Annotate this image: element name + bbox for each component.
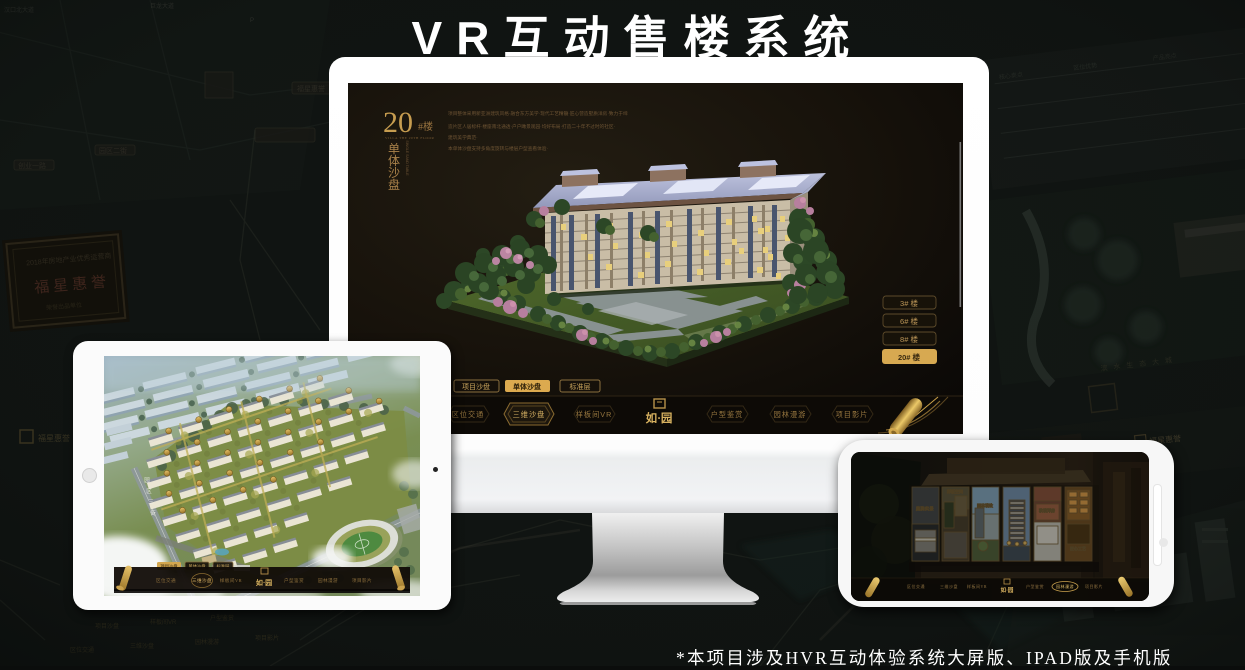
svg-text:户型鉴赏: 户型鉴赏 — [711, 410, 744, 419]
svg-text:项目影片: 项目影片 — [352, 577, 372, 584]
svg-text:三: 三 — [148, 499, 154, 506]
svg-text:园林漫游: 园林漫游 — [774, 410, 807, 419]
svg-text:区位交通: 区位交通 — [907, 583, 925, 589]
svg-text:三维沙盘: 三维沙盘 — [940, 583, 958, 589]
svg-text:园: 园 — [144, 477, 150, 484]
svg-text:户型鉴赏: 户型鉴赏 — [1026, 583, 1044, 589]
svg-text:20# 楼: 20# 楼 — [898, 352, 921, 362]
svg-text:三维沙盘: 三维沙盘 — [513, 410, 546, 419]
svg-text:如·园: 如·园 — [1001, 586, 1014, 594]
svg-text:本单体沙盘支持多角度旋转与楼层户型查看体验·: 本单体沙盘支持多角度旋转与楼层户型查看体验· — [448, 145, 548, 152]
svg-text:项目沙盘: 项目沙盘 — [462, 382, 490, 391]
svg-text:3# 楼: 3# 楼 — [900, 298, 918, 308]
svg-text:如·园: 如·园 — [256, 578, 272, 587]
svg-text:区位交通: 区位交通 — [156, 577, 176, 584]
svg-text:单体沙盘: 单体沙盘 — [513, 382, 541, 391]
svg-text:项目影片: 项目影片 — [836, 410, 869, 419]
svg-text:园林漫游: 园林漫游 — [1056, 583, 1074, 589]
svg-text:SINGLE SAND TABLE: SINGLE SAND TABLE — [405, 140, 409, 176]
svg-text:户型鉴赏: 户型鉴赏 — [284, 577, 304, 584]
svg-text:如·园: 如·园 — [646, 411, 673, 425]
svg-text:盘: 盘 — [388, 177, 400, 192]
svg-text:区位交通: 区位交通 — [452, 410, 485, 419]
svg-text:三维沙盘: 三维沙盘 — [192, 577, 212, 584]
svg-text:8# 楼: 8# 楼 — [900, 334, 918, 344]
svg-text:样板间VR: 样板间VR — [576, 410, 613, 419]
svg-text:6# 楼: 6# 楼 — [900, 316, 918, 326]
svg-text:#楼: #楼 — [418, 120, 433, 133]
svg-text:样板间VR: 样板间VR — [967, 583, 987, 589]
svg-text:样板间VR: 样板间VR — [220, 577, 243, 584]
svg-text:建筑美学典范·: 建筑美学典范· — [448, 134, 478, 141]
svg-text:园林漫游: 园林漫游 — [318, 577, 338, 584]
svg-text:区: 区 — [146, 488, 152, 495]
svg-text:20: 20 — [383, 106, 413, 139]
svg-text:项目影片: 项目影片 — [1085, 583, 1103, 589]
svg-text:造片区人居标杆·楼座南北通透·户户瞰景观园·均好布局·打造二: 造片区人居标杆·楼座南北通透·户户瞰景观园·均好布局·打造二十年不过时的社区· — [448, 123, 615, 130]
svg-text:项目整体采用新亚洲建筑风格·融合东方美学·现代工艺精髓·匠心: 项目整体采用新亚洲建筑风格·融合东方美学·现代工艺精髓·匠心营造墅质洋房·致力于… — [448, 110, 628, 117]
svg-text:标准层: 标准层 — [570, 382, 591, 391]
svg-text:街: 街 — [150, 509, 156, 517]
